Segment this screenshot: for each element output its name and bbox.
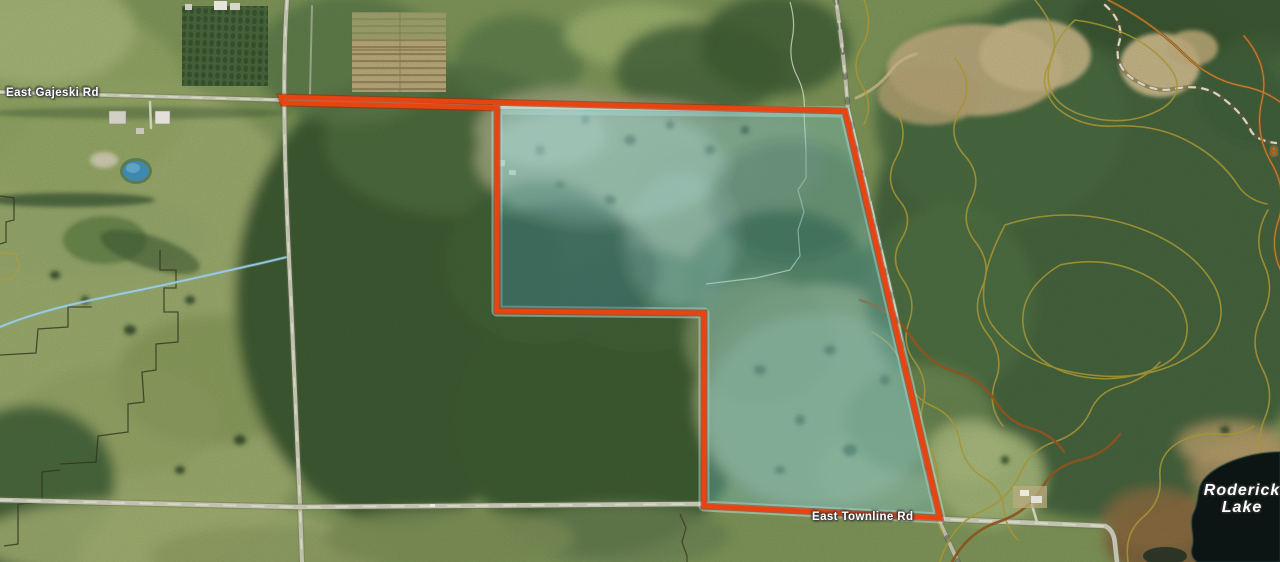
aerial-map-viewport[interactable]: East Gajeski Rd East Townline Rd Roderic… [0,0,1280,562]
house [109,111,126,124]
satellite-basemap [0,0,1280,562]
house [155,111,170,124]
